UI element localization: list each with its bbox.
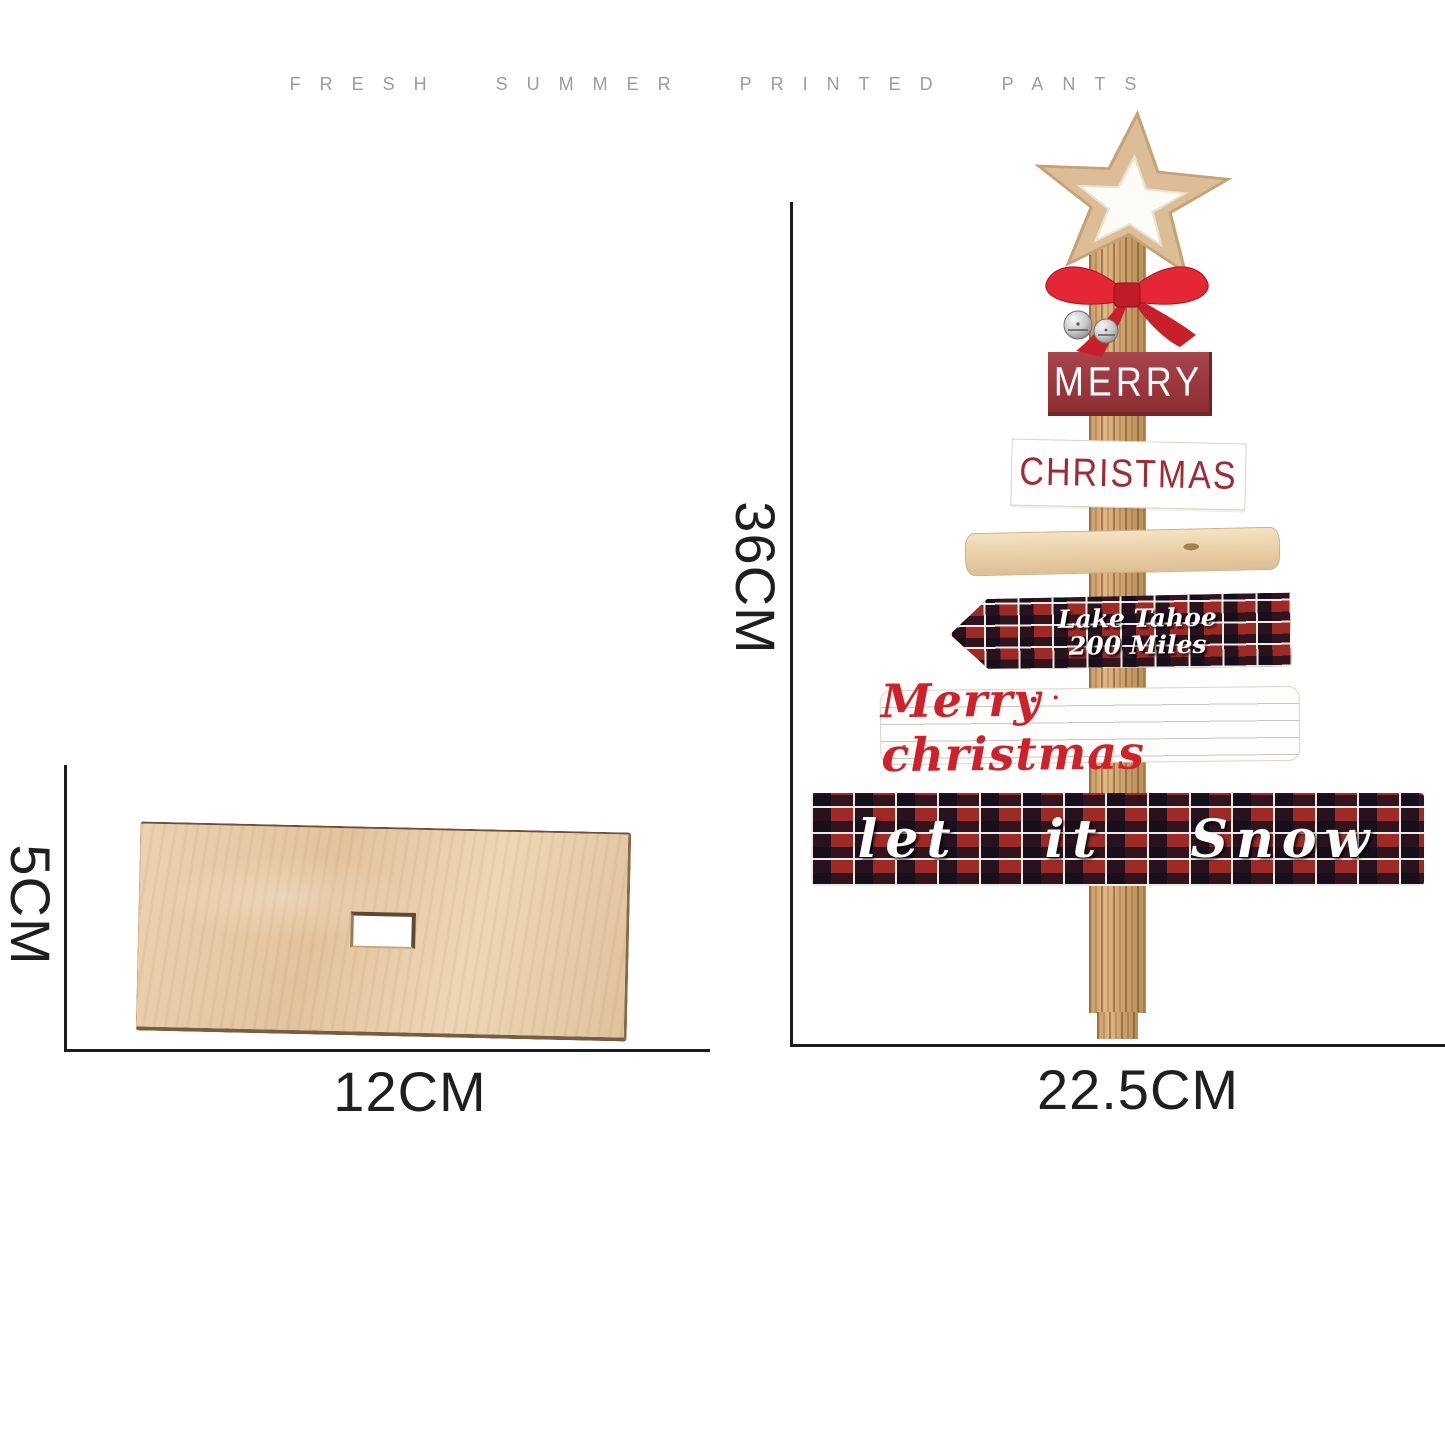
base-width-label: 12CM <box>260 1064 560 1120</box>
base-plate-slot <box>350 911 416 948</box>
wooden-plank <box>965 527 1281 577</box>
tree-trunk-foot <box>1097 1012 1138 1039</box>
plaid-arrow-sign: Lake Tahoe 200 Miles <box>950 593 1292 672</box>
base-width-dimension-line <box>64 1049 710 1052</box>
wooden-base-plate <box>136 821 632 1041</box>
tree-width-dimension-line <box>790 1044 1445 1047</box>
script-sign-label: Merry christmas <box>880 669 1299 781</box>
snow-sign-label: let it Snow <box>858 809 1378 870</box>
merry-christmas-script-sign: Merry christmas <box>880 686 1301 765</box>
arrow-sign-line1: Lake Tahoe <box>1058 604 1217 633</box>
christmas-sign-label: CHRISTMAS <box>1019 450 1238 499</box>
header-caption: FRESH SUMMER PRINTED PANTS <box>0 74 1445 95</box>
christmas-sign: CHRISTMAS <box>1010 439 1246 511</box>
tree-height-dimension-line <box>790 202 793 1047</box>
merry-sign: MERRY <box>1048 352 1212 416</box>
merry-sign-label: MERRY <box>1054 358 1203 405</box>
base-height-dimension-line <box>64 765 67 1052</box>
base-height-label: 5CM <box>2 805 58 1005</box>
tree-height-label: 36CM <box>727 458 783 698</box>
product-dimension-image: FRESH SUMMER PRINTED PANTS 5CM 12CM 36CM… <box>0 0 1445 1445</box>
bells-icon <box>1058 303 1134 351</box>
arrow-sign-line2: 200 Miles <box>1069 631 1207 660</box>
tree-width-label: 22.5CM <box>988 1062 1288 1118</box>
let-it-snow-sign: let it Snow <box>811 793 1424 886</box>
